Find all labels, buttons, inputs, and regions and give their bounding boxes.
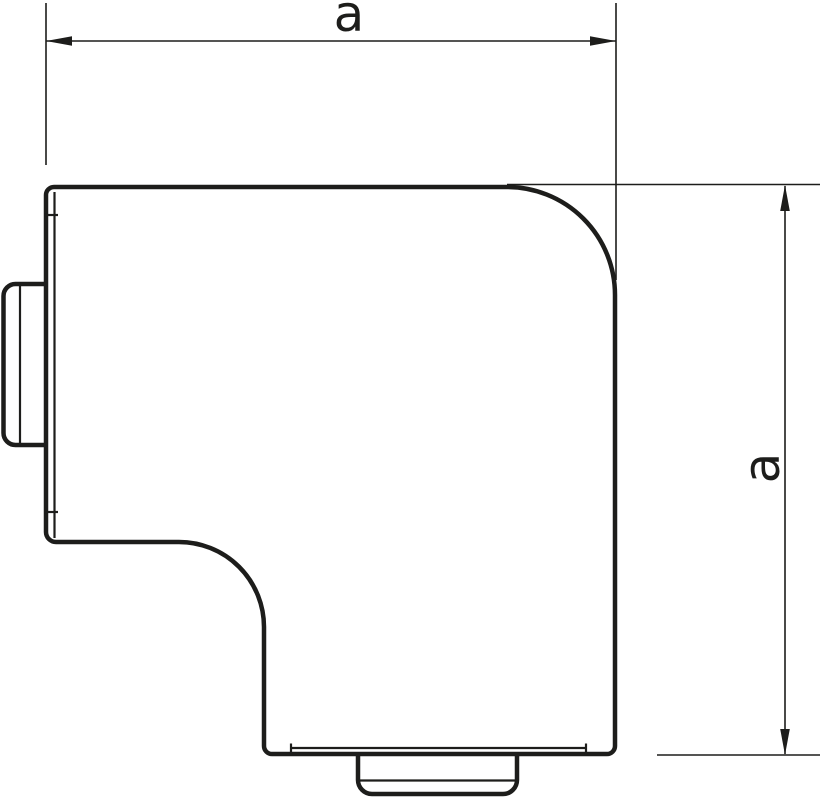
flat-angle-body-outline <box>46 187 615 754</box>
height-dimension-label: a <box>733 453 791 484</box>
part-outline-group <box>4 187 616 794</box>
width-arrow-left-icon <box>46 36 72 46</box>
drawing-page: a a <box>0 0 821 804</box>
width-dimension-label: a <box>334 0 365 43</box>
bottom-socket-outline <box>358 750 517 794</box>
height-arrow-bottom-icon <box>780 729 790 755</box>
height-arrow-top-icon <box>780 185 790 211</box>
width-arrow-right-icon <box>590 36 616 46</box>
left-socket-outline <box>4 284 47 445</box>
technical-drawing-canvas: a a <box>0 0 821 804</box>
